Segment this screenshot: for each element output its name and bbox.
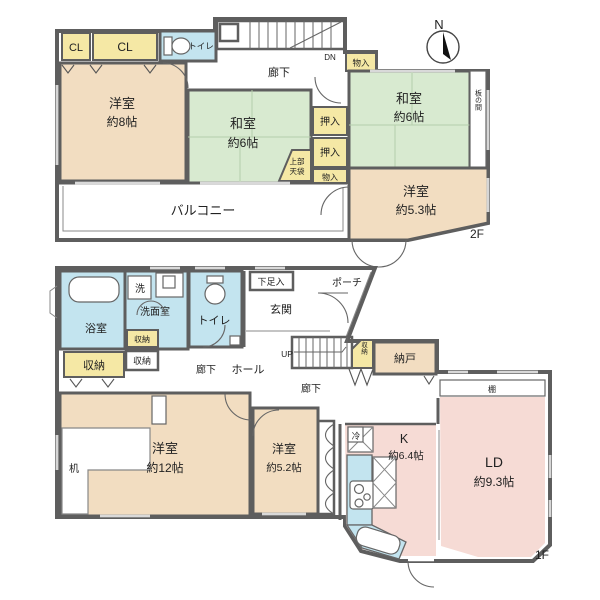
monoire-hall-label: 物入 [352, 58, 370, 68]
yoshitsu8-name: 洋室 [109, 96, 135, 111]
floor-2f-label: 2F [470, 227, 484, 241]
itanoma-label: 板の間 [475, 89, 483, 112]
oshiire1-label: 押入 [320, 115, 340, 128]
monoire-small-label: 物入 [322, 172, 338, 182]
compass-n-label: N [434, 17, 443, 32]
pillar-duct [152, 396, 166, 424]
itanoma-strip [470, 71, 486, 168]
yoshitsu12-name: 洋室 [152, 441, 178, 456]
stairs-dn-label: DN [324, 53, 336, 62]
hall-label: ホール [232, 363, 265, 376]
corridor-center-label: 廊下 [301, 382, 321, 395]
yoshitsu53-size: 約5.3帖 [396, 202, 437, 217]
tenbukuro-line1: 上部 [290, 156, 305, 166]
floor-2f: バルコニー CL CL トイレ DN 廊下 物入 洋室 約8帖 [57, 17, 488, 267]
kitchen-exit-door [408, 560, 434, 587]
washitsu-east-name: 和室 [396, 91, 422, 106]
porch-label: ポーチ [332, 277, 362, 289]
corridor-west-label: 廊下 [196, 363, 216, 376]
bathtub-icon [69, 277, 119, 302]
ld-name: LD [485, 454, 503, 470]
compass-north: N [427, 17, 459, 63]
toilet-2f-label: トイレ [188, 41, 214, 51]
toilet-tank-icon-1f [207, 276, 223, 283]
room-yoshitsu52 [253, 408, 318, 514]
prep-table [373, 457, 396, 508]
toilet-paper-box [230, 336, 240, 345]
oshiire2-label: 押入 [320, 146, 340, 159]
kitchen-name: K [400, 432, 409, 446]
cl2-label: CL [117, 40, 133, 54]
ld-size: 約9.3帖 [474, 474, 515, 489]
shuno-mid-label: 収納 [133, 355, 151, 366]
toilet-1f-label: トイレ [198, 315, 231, 327]
fridge-label: 冷 [352, 431, 361, 441]
desk-label: 机 [69, 462, 79, 475]
shuno-left-label: 収納 [83, 359, 105, 372]
yoshitsu52-name: 洋室 [272, 441, 296, 456]
balcony-label: バルコニー [171, 203, 236, 218]
washitsu-center-name: 和室 [230, 116, 256, 131]
washitsu-east-size: 約6帖 [394, 109, 425, 124]
stairs-up-label: UP [281, 349, 293, 359]
corridor-2f-label: 廊下 [268, 65, 290, 79]
yoshitsu12-size: 約12帖 [146, 460, 183, 475]
stove [350, 481, 374, 509]
tenbukuro-line2: 天袋 [290, 166, 305, 176]
toilet-bowl-icon-1f [205, 284, 225, 304]
toilet-tank-icon-2f [164, 37, 172, 55]
yoshitsu53-name: 洋室 [403, 184, 429, 199]
floor-1f-label: 1F [535, 548, 549, 562]
sink-basin-icon [163, 276, 175, 288]
yoshitsu8-size: 約8帖 [107, 114, 138, 129]
shuno-senmen-label: 収納 [134, 334, 150, 344]
senmen-label: 洗面室 [140, 305, 170, 318]
yoshitsu52-size: 約5.2帖 [266, 461, 302, 474]
washitsu-center-size: 約6帖 [228, 135, 259, 150]
nando-label: 納戸 [394, 352, 416, 365]
washer-label: 洗 [135, 283, 145, 295]
bath-label: 浴室 [85, 321, 107, 335]
floor-plan: バルコニー CL CL トイレ DN 廊下 物入 洋室 約8帖 [0, 0, 600, 600]
cl1-label: CL [69, 42, 83, 54]
floor-1f: 浴室 洗 洗面室 収納 トイレ 収納 収納 下足入 玄関 ポーチ [50, 268, 550, 587]
shelf-label: 棚 [488, 384, 496, 394]
genkan-label: 玄関 [270, 302, 292, 316]
kitchen-size: 約6.4帖 [388, 449, 424, 462]
gesokuire-label: 下足入 [257, 277, 284, 287]
